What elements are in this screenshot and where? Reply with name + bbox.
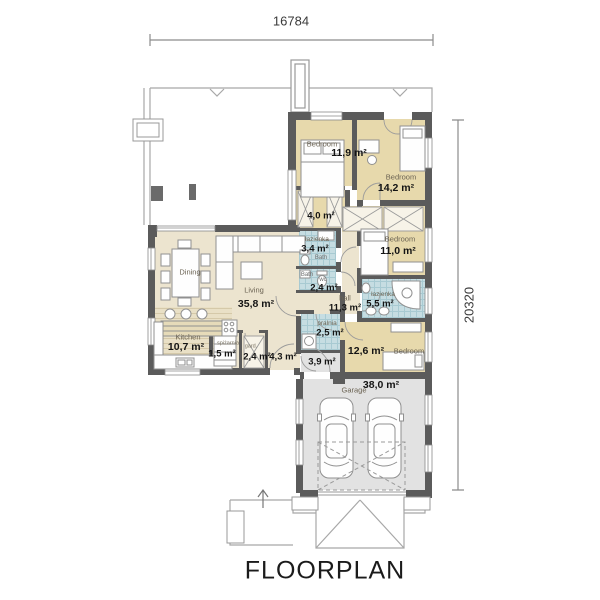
- bath2-area: 2,4 m²: [310, 283, 337, 293]
- page-title: FLOORPLAN: [245, 559, 405, 584]
- bath1-sub: Bath: [315, 255, 327, 261]
- dining-name: Dining: [179, 268, 200, 276]
- living-name: Living: [244, 286, 264, 294]
- stove-icon: [222, 320, 237, 336]
- hall-name: hall: [339, 294, 351, 302]
- bedroom2-name: Bedroom: [386, 173, 416, 181]
- chimney: [291, 60, 309, 112]
- pantry-area: 1,5 m²: [208, 349, 235, 359]
- bathtub-icon: [392, 281, 420, 309]
- garage-door: [292, 442, 430, 510]
- pantry-name: spiżarnia: [217, 341, 239, 347]
- bedroom4-area: 12,6 m²: [348, 346, 384, 357]
- desk-icon: [393, 262, 423, 272]
- wardrobe-name: gard.: [245, 344, 258, 350]
- bath1-area: 3,4 m²: [301, 244, 328, 254]
- bedroom4-name: Bedroom: [394, 347, 424, 355]
- laundry-area: 2,5 m²: [316, 328, 343, 338]
- dimension-line-top: [150, 34, 433, 46]
- desk-icon: [391, 323, 421, 332]
- toilet-icon: [362, 283, 370, 293]
- car-icon: [318, 398, 356, 478]
- kitchen-name: Kitchen: [175, 333, 200, 341]
- entry-area: 3,9 m²: [308, 357, 335, 367]
- kitchen-area: 10,7 m²: [168, 342, 204, 353]
- floorplan-canvas: 16784 20320 Bedroom 11,9 m² Bedroom 14,2…: [0, 0, 600, 600]
- living-area: 35,8 m²: [238, 299, 274, 310]
- wardrobe-area: 2,4 m²: [243, 352, 270, 362]
- dimension-height-label: 20320: [463, 287, 476, 323]
- car-icon: [366, 398, 404, 478]
- corridor-area: 4,0 m²: [307, 211, 334, 221]
- bath2-name: Bath: [301, 272, 313, 278]
- bath3-area: 5,5 m²: [366, 299, 393, 309]
- bedroom1-area: 11,9 m²: [331, 148, 367, 159]
- entrance-arrow-icon: [258, 490, 268, 508]
- bedroom2-area: 14,2 m²: [378, 183, 414, 194]
- coffee-table-icon: [241, 262, 262, 279]
- bed-icon: [400, 126, 425, 171]
- garage-area: 38,0 m²: [363, 380, 399, 391]
- dimension-width-label: 16784: [273, 15, 309, 28]
- hall-area: 11,3 m²: [329, 303, 361, 313]
- bedroom3-area: 11,0 m²: [380, 246, 416, 257]
- floorplan-drawing: [0, 0, 600, 600]
- hallway2-area: 4,3 m²: [269, 352, 296, 362]
- washer-icon: [302, 334, 316, 349]
- bedroom3-name: Bedroom: [385, 235, 415, 243]
